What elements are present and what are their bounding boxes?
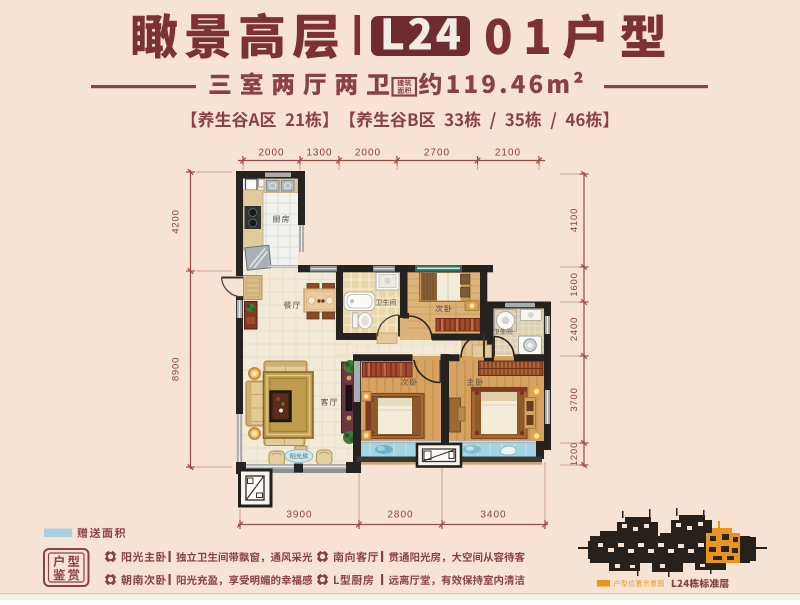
svg-text:1600: 1600 [569, 272, 580, 296]
svg-text:1200: 1200 [569, 442, 580, 466]
svg-text:2000: 2000 [355, 148, 381, 159]
svg-text:2100: 2100 [495, 148, 521, 159]
svg-text:2700: 2700 [424, 148, 450, 159]
svg-text:3700: 3700 [569, 387, 580, 411]
svg-text:2000: 2000 [258, 148, 284, 159]
svg-text:1300: 1300 [306, 148, 332, 159]
svg-text:4100: 4100 [569, 208, 580, 232]
svg-text:2800: 2800 [387, 510, 413, 521]
svg-text:2400: 2400 [569, 317, 580, 341]
svg-text:3400: 3400 [480, 510, 506, 521]
svg-text:8900: 8900 [171, 357, 182, 381]
svg-text:4200: 4200 [171, 209, 182, 233]
svg-text:3900: 3900 [286, 510, 312, 521]
